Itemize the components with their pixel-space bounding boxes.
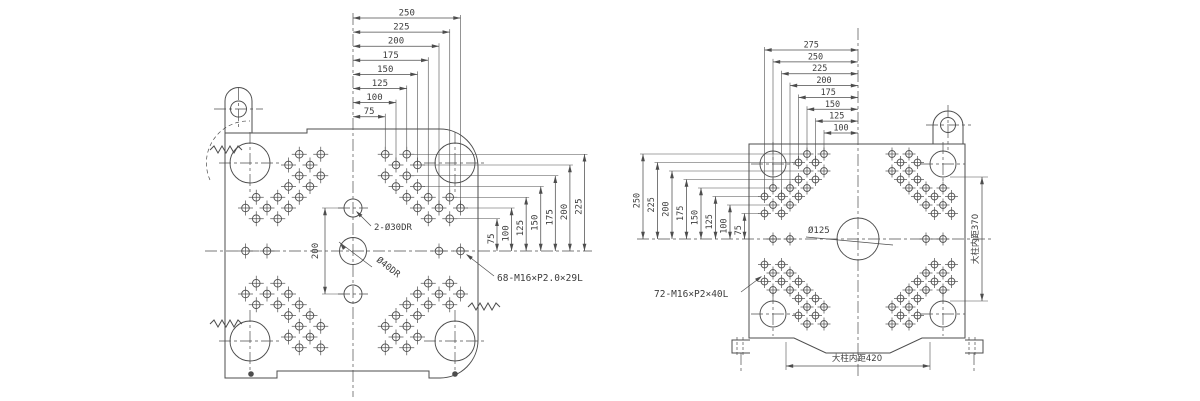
dim-arrow <box>353 58 360 62</box>
dim-arrow <box>453 16 460 20</box>
dim-arrow <box>389 101 396 105</box>
side-dim-label: 125 <box>516 220 526 236</box>
edge-dot <box>248 371 254 377</box>
top-dim-label: 250 <box>399 9 415 19</box>
dim-arrow <box>699 188 703 195</box>
vertical-dim-label: 200 <box>311 243 321 259</box>
dim-arrow <box>641 232 645 239</box>
dim-arrow <box>495 219 499 226</box>
dim-arrow <box>443 30 450 34</box>
side-dim-label: 150 <box>691 210 701 225</box>
dim-arrow <box>980 177 984 184</box>
dim-arrow <box>553 244 557 251</box>
dim-arrow <box>568 244 572 251</box>
left-view: 2502252001751501251007575100125150175200… <box>205 9 592 398</box>
side-dim-label: 175 <box>545 209 555 225</box>
side-dim-label: 200 <box>560 204 570 220</box>
dim-arrow <box>353 44 360 48</box>
top-dim-label: 100 <box>366 93 382 103</box>
top-dim-label: 125 <box>372 79 388 89</box>
dim-arrow <box>353 101 360 105</box>
side-dim-label: 100 <box>502 225 512 241</box>
dim-arrow <box>568 165 572 172</box>
dim-arrow <box>714 232 718 239</box>
top-dim-label: 75 <box>364 107 375 117</box>
dim-arrow <box>410 73 417 77</box>
drawing-canvas: 2502252001751501251007575100125150175200… <box>0 0 1200 401</box>
dim-arrow <box>799 96 806 100</box>
dim-arrow <box>432 44 439 48</box>
top-dim-label: 150 <box>377 65 393 75</box>
dim-arrow <box>851 84 858 88</box>
dim-arrow <box>824 131 831 135</box>
dim-arrow <box>851 60 858 64</box>
top-dim-label: 100 <box>833 124 848 134</box>
dim-arrow <box>539 244 543 251</box>
dim-arrow <box>421 58 428 62</box>
dim-arrow <box>524 244 528 251</box>
top-dim-label: 200 <box>388 37 404 47</box>
top-dim-label: 275 <box>804 41 819 51</box>
dim-arrow <box>323 287 327 294</box>
dim-arrow <box>980 294 984 301</box>
center-hole-annotation: Ø125 <box>808 225 830 236</box>
dim-arrow <box>670 171 674 178</box>
dim-arrow <box>553 176 557 183</box>
pilot-hole-annotation: 2-Ø30DR <box>374 222 413 233</box>
dim-arrow <box>807 107 814 111</box>
dim-arrow <box>790 84 797 88</box>
mounting-foot <box>965 340 983 353</box>
dim-arrow <box>685 180 689 187</box>
dim-arrow <box>323 208 327 215</box>
top-dim-label: 225 <box>812 64 827 74</box>
dim-arrow <box>524 197 528 204</box>
dim-arrow <box>773 60 780 64</box>
side-dim-label: 75 <box>734 225 744 235</box>
dim-arrow <box>670 232 674 239</box>
dim-arrow <box>786 364 793 368</box>
side-dim-label: 225 <box>574 198 584 214</box>
dim-arrow <box>400 87 407 91</box>
dim-arrow <box>782 72 789 76</box>
dim-arrow <box>353 30 360 34</box>
side-dim-label: 100 <box>720 218 730 233</box>
mounting-foot <box>732 340 750 353</box>
dim-arrow <box>510 208 514 215</box>
dim-arrow <box>851 96 858 100</box>
center-hole-annotation: Ø40DR <box>374 255 403 281</box>
dim-arrow <box>816 119 823 123</box>
break-line <box>468 303 500 310</box>
dim-arrow <box>583 154 587 161</box>
tie-bar-height-dim: 大柱内距370 <box>970 214 981 264</box>
dim-arrow <box>923 364 930 368</box>
top-dim-label: 200 <box>816 76 831 86</box>
tie-bar-width-dim: 大柱内距420 <box>832 353 882 364</box>
top-dim-label: 175 <box>382 51 398 61</box>
dim-arrow <box>699 232 703 239</box>
platen-engineering-drawing: 2502252001751501251007575100125150175200… <box>0 0 1200 401</box>
dim-arrow <box>851 131 858 135</box>
top-dim-label: 125 <box>829 112 844 122</box>
side-dim-label: 175 <box>676 206 686 221</box>
dim-arrow <box>851 119 858 123</box>
top-dim-label: 225 <box>393 23 409 33</box>
side-dim-label: 125 <box>705 214 715 229</box>
dim-arrow <box>728 205 732 212</box>
top-dim-label: 150 <box>825 100 840 110</box>
bolt-annotation: 72-M16×P2×40L <box>654 289 729 300</box>
side-dim-label: 150 <box>531 215 541 231</box>
dim-arrow <box>353 115 360 119</box>
side-dim-label: 225 <box>647 197 657 212</box>
dim-arrow <box>510 244 514 251</box>
dim-arrow <box>714 197 718 204</box>
leader-line <box>339 242 372 267</box>
dim-arrow <box>641 154 645 161</box>
side-dim-label: 75 <box>487 233 497 244</box>
top-dim-label: 175 <box>821 88 836 98</box>
top-dim-label: 250 <box>808 52 823 62</box>
dim-arrow <box>656 232 660 239</box>
dim-arrow <box>743 214 747 221</box>
edge-dot <box>452 371 458 377</box>
dim-arrow <box>583 244 587 251</box>
dim-arrow <box>851 48 858 52</box>
dim-arrow <box>656 163 660 170</box>
phantom-arc <box>206 121 250 180</box>
dim-arrow <box>539 187 543 194</box>
right-view: 2752502252001751501251002502252001751501… <box>633 28 993 378</box>
dim-arrow <box>353 73 360 77</box>
side-dim-label: 200 <box>662 201 672 216</box>
dim-arrow <box>685 232 689 239</box>
dim-arrow <box>851 72 858 76</box>
bolt-annotation: 68-M16×P2.0×29L <box>497 273 583 284</box>
leader-line <box>806 237 893 245</box>
side-dim-label: 250 <box>633 193 643 208</box>
dim-arrow <box>851 107 858 111</box>
dim-arrow <box>378 115 385 119</box>
break-line <box>210 146 242 153</box>
dim-arrow <box>353 87 360 91</box>
dim-arrow <box>765 48 772 52</box>
dim-arrow <box>353 16 360 20</box>
